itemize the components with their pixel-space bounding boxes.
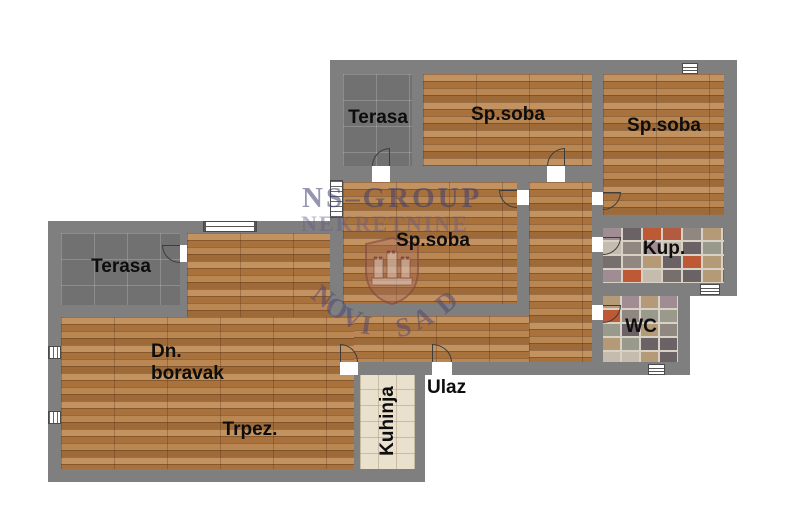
wall-top <box>330 60 737 74</box>
door-gap-wc <box>592 305 603 320</box>
window-living-left-2 <box>48 411 61 424</box>
label-sp-soba-2: Sp.soba <box>603 115 725 137</box>
wall-step-top <box>48 221 343 233</box>
window-living-top <box>203 221 257 232</box>
floor-bedroom-2 <box>603 74 724 215</box>
door-gap-bedroom-3 <box>517 190 529 205</box>
wall-right-outer <box>724 60 737 295</box>
door-gap-bedroom-1 <box>547 166 565 182</box>
label-terasa-upper: Terasa <box>341 107 415 129</box>
door-gap-entrance <box>432 362 452 375</box>
door-gap-bedroom-2 <box>592 192 603 205</box>
door-gap-bathroom <box>592 237 603 252</box>
window-bathroom <box>700 284 720 295</box>
label-sp-soba-3: Sp.soba <box>343 230 523 252</box>
floor-plan: NS–GROUP NEKRETNINE NOVISAD Terasa Sp.so… <box>0 0 785 531</box>
window-wc <box>648 364 665 375</box>
label-dnevni-boravak: Dn. boravak <box>151 341 236 385</box>
label-kupatilo: Kup. <box>603 238 725 260</box>
wall-bottom <box>48 469 425 482</box>
wall-kitchen-right <box>415 362 425 482</box>
window-living-left-1 <box>48 346 61 359</box>
label-sp-soba-1: Sp.soba <box>423 104 593 126</box>
door-gap-kitchen <box>340 362 358 375</box>
wall-terrace-lower-bottom <box>61 305 187 317</box>
floor-living-main <box>61 317 354 469</box>
label-terasa-lower: Terasa <box>61 256 181 278</box>
label-wc: WC <box>603 316 679 338</box>
window-bedroom-2-top <box>682 63 698 74</box>
label-ulaz: Ulaz <box>427 377 497 399</box>
door-gap-terrace-upper <box>372 166 390 182</box>
label-kuhinja-wrap: Kuhinja <box>360 373 415 469</box>
door-gap-terrace-lower <box>180 245 187 262</box>
wall-bedroom2-bottom <box>592 215 737 228</box>
floor-hallway-vertical <box>529 182 592 362</box>
label-trpezarija: Trpez. <box>180 419 320 441</box>
label-kuhinja: Kuhinja <box>377 386 399 456</box>
wall-terrace-lower-right <box>180 233 187 305</box>
